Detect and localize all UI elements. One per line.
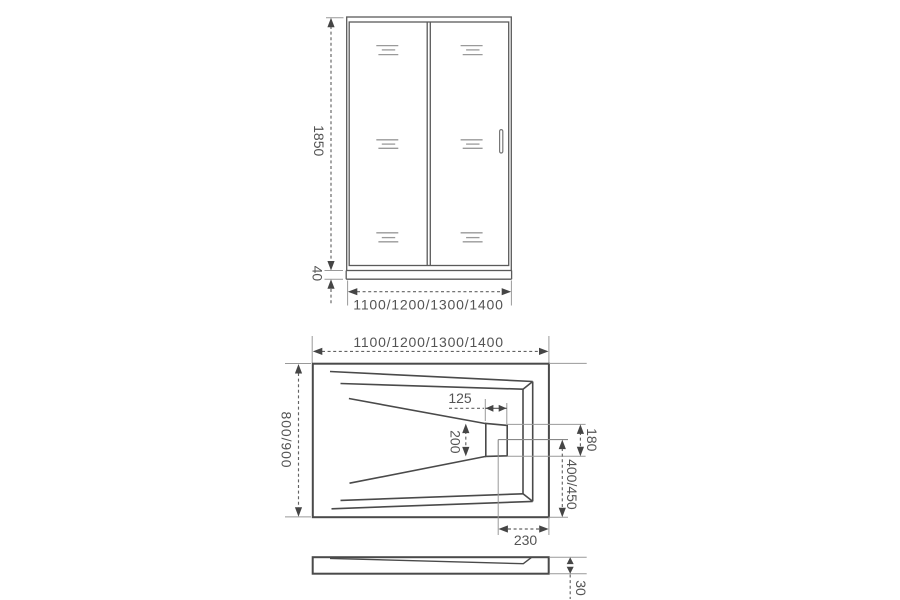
svg-text:800/900: 800/900: [279, 412, 295, 469]
svg-text:1850: 1850: [311, 125, 327, 156]
svg-text:125: 125: [448, 390, 472, 406]
svg-text:400/450: 400/450: [564, 459, 580, 510]
svg-text:1100/1200/1300/1400: 1100/1200/1300/1400: [353, 334, 503, 350]
svg-text:180: 180: [584, 428, 600, 452]
svg-text:40: 40: [310, 266, 326, 282]
svg-text:30: 30: [573, 580, 589, 596]
svg-text:230: 230: [514, 532, 538, 548]
svg-text:1100/1200/1300/1400: 1100/1200/1300/1400: [353, 297, 503, 313]
svg-text:200: 200: [447, 430, 463, 454]
